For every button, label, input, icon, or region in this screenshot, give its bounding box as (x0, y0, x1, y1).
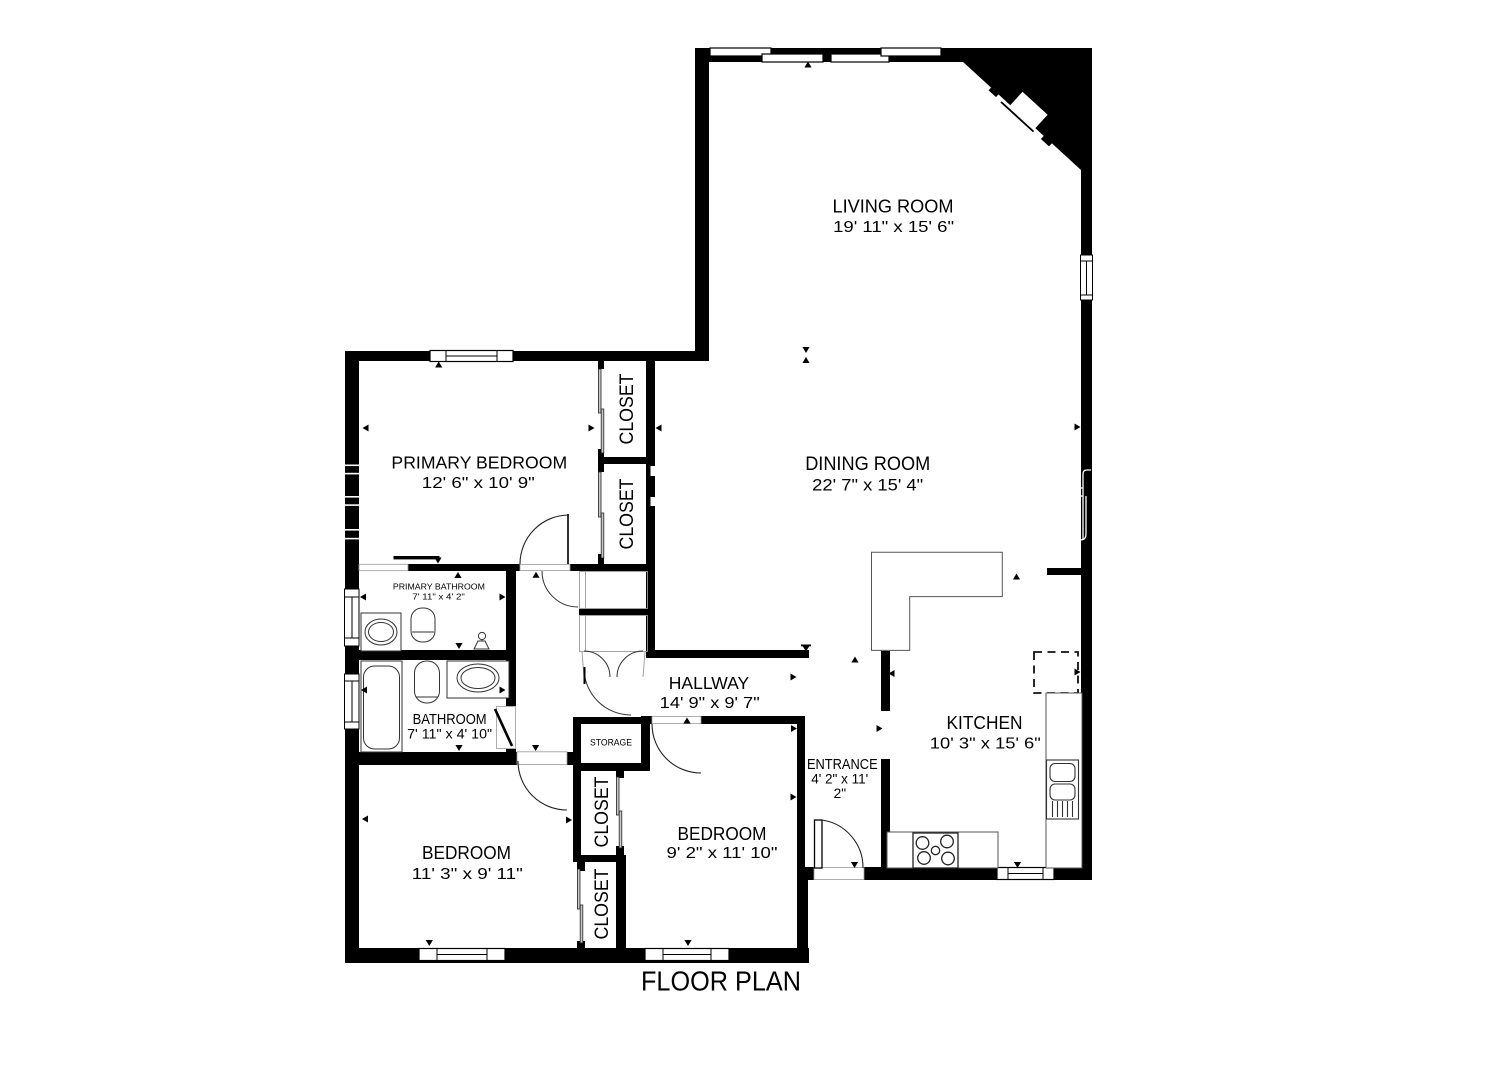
svg-text:KITCHEN: KITCHEN (947, 712, 1023, 733)
svg-text:9' 2" x 11' 10": 9' 2" x 11' 10" (667, 845, 778, 862)
svg-text:7' 11" x 4' 2": 7' 11" x 4' 2" (412, 592, 465, 602)
svg-text:FLOOR PLAN: FLOOR PLAN (641, 966, 801, 997)
svg-text:LIVING ROOM: LIVING ROOM (833, 196, 954, 217)
svg-text:10' 3" x 15' 6": 10' 3" x 15' 6" (930, 735, 1041, 752)
svg-text:BEDROOM: BEDROOM (422, 842, 511, 863)
svg-text:CLOSET: CLOSET (592, 868, 613, 939)
svg-text:CLOSET: CLOSET (592, 776, 613, 847)
svg-text:DINING ROOM: DINING ROOM (805, 454, 930, 475)
svg-text:14' 9" x 9' 7": 14' 9" x 9' 7" (660, 695, 760, 712)
svg-text:CLOSET: CLOSET (617, 373, 638, 444)
svg-text:BEDROOM: BEDROOM (678, 823, 767, 844)
svg-text:4' 2" x 11': 4' 2" x 11' (811, 771, 868, 786)
svg-text:19' 11" x 15' 6": 19' 11" x 15' 6" (833, 219, 954, 236)
svg-text:HALLWAY: HALLWAY (669, 673, 750, 693)
svg-text:STORAGE: STORAGE (590, 738, 632, 749)
svg-text:PRIMARY BEDROOM: PRIMARY BEDROOM (391, 453, 567, 473)
svg-text:7' 11" x 4' 10": 7' 11" x 4' 10" (407, 726, 492, 742)
svg-text:11' 3" x 9' 11": 11' 3" x 9' 11" (412, 866, 523, 883)
svg-text:22' 7" x 15' 4": 22' 7" x 15' 4" (812, 476, 923, 494)
svg-text:2": 2" (834, 786, 847, 801)
svg-text:12' 6" x 10' 9": 12' 6" x 10' 9" (422, 475, 535, 492)
svg-text:PRIMARY BATHROOM: PRIMARY BATHROOM (393, 582, 485, 592)
svg-text:CLOSET: CLOSET (617, 478, 638, 549)
